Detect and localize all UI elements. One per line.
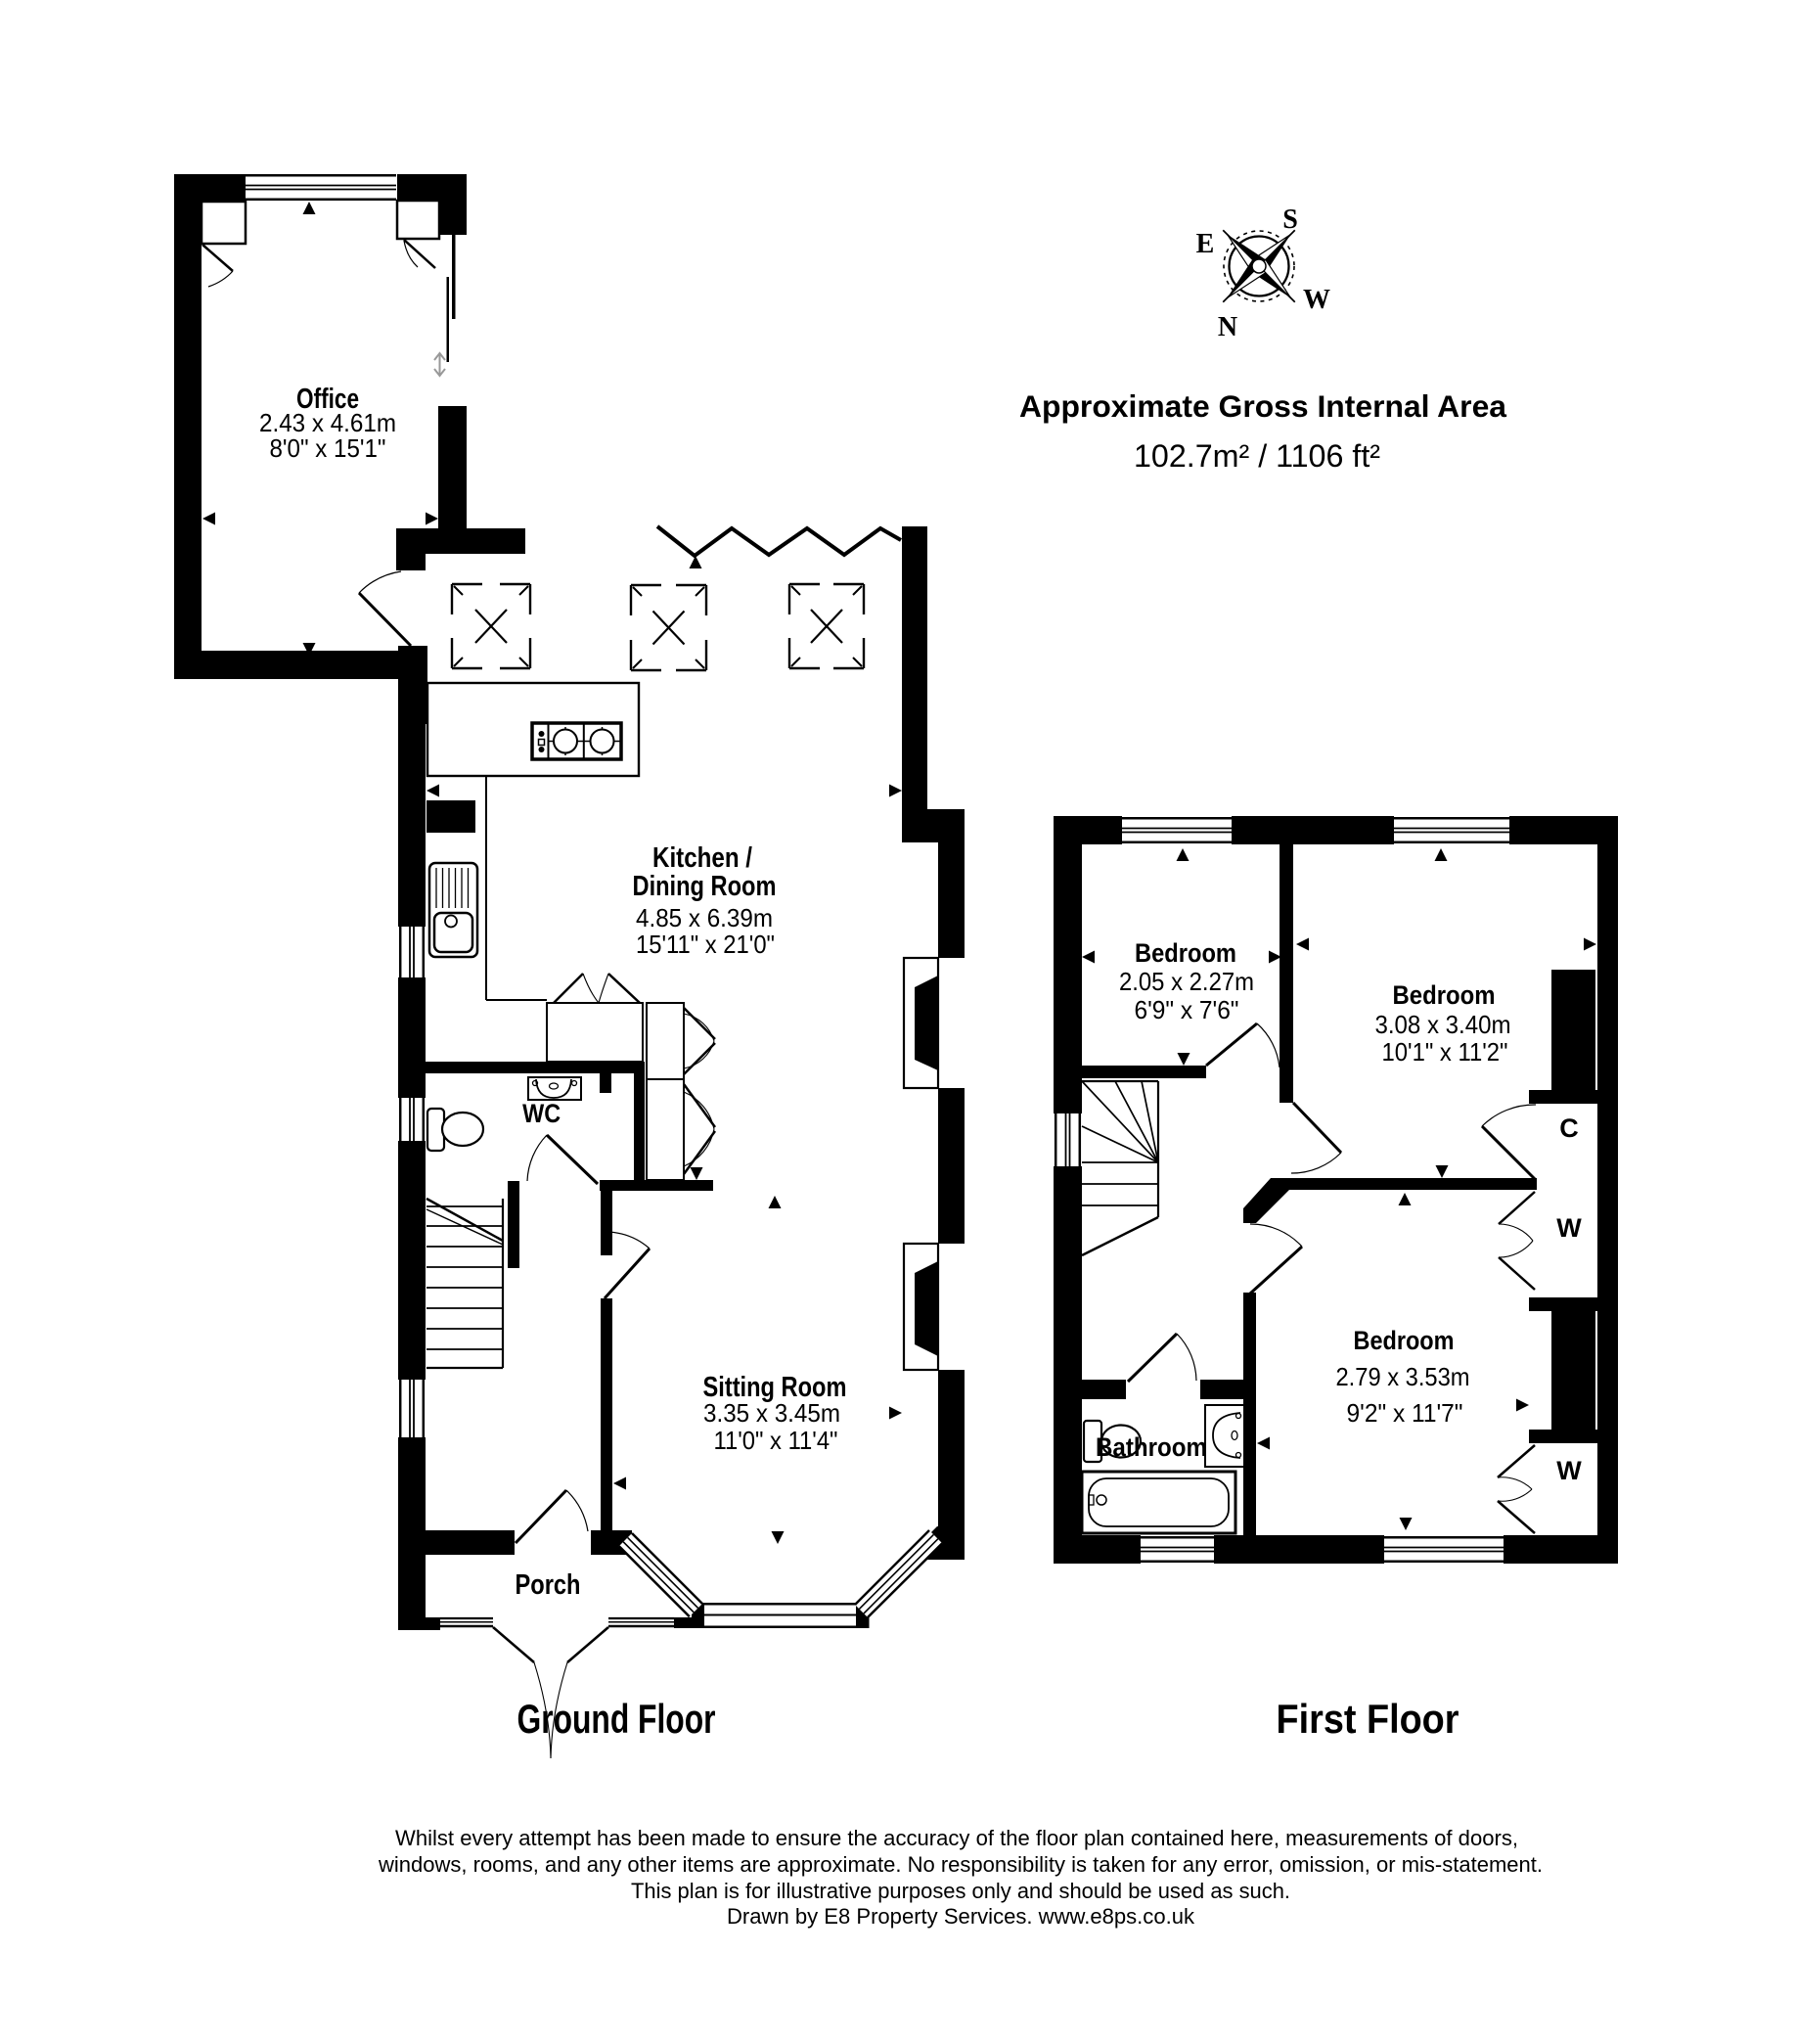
svg-text:Bathroom: Bathroom [1096,1432,1207,1462]
svg-text:Drawn by E8 Property Services.: Drawn by E8 Property Services. www.e8ps.… [727,1904,1195,1929]
svg-text:6'9" x 7'6": 6'9" x 7'6" [1135,995,1239,1024]
svg-text:2.79 x 3.53m: 2.79 x 3.53m [1336,1362,1470,1391]
svg-text:10'1" x 11'2": 10'1" x 11'2" [1382,1037,1508,1067]
svg-text:Kitchen /: Kitchen / [652,842,752,874]
svg-text:W: W [1303,285,1330,315]
svg-text:This plan is for illustrative: This plan is for illustrative purposes o… [631,1879,1290,1903]
svg-text:3.35 x 3.45m: 3.35 x 3.45m [703,1398,840,1428]
svg-text:E: E [1196,229,1215,259]
svg-text:Bedroom: Bedroom [1135,938,1236,968]
svg-text:C: C [1559,1113,1579,1143]
svg-text:S: S [1282,204,1298,235]
svg-text:11'0" x 11'4": 11'0" x 11'4" [714,1426,838,1455]
svg-text:3.08 x 3.40m: 3.08 x 3.40m [1375,1010,1511,1039]
svg-text:4.85 x 6.39m: 4.85 x 6.39m [636,903,773,932]
svg-text:Bedroom: Bedroom [1354,1326,1455,1355]
svg-text:Approximate Gross Internal Are: Approximate Gross Internal Area [1019,388,1506,424]
svg-text:WC: WC [522,1099,561,1128]
svg-text:N: N [1218,312,1237,342]
svg-text:Porch: Porch [516,1569,581,1601]
svg-text:W: W [1556,1213,1582,1243]
svg-text:windows, rooms, and any other: windows, rooms, and any other items are … [378,1852,1543,1877]
svg-text:Dining Room: Dining Room [633,871,777,902]
svg-text:102.7m² / 1106 ft²: 102.7m² / 1106 ft² [1134,438,1380,474]
svg-text:8'0" x 15'1": 8'0" x 15'1" [270,433,386,463]
svg-text:Whilst every attempt has been: Whilst every attempt has been made to en… [395,1826,1518,1850]
svg-text:W: W [1556,1456,1582,1485]
svg-text:Ground Floor: Ground Floor [517,1696,716,1742]
svg-text:First Floor: First Floor [1277,1696,1459,1742]
svg-text:Bedroom: Bedroom [1393,980,1496,1010]
svg-text:2.05 x 2.27m: 2.05 x 2.27m [1119,967,1254,996]
svg-text:9'2" x 11'7": 9'2" x 11'7" [1347,1398,1463,1428]
svg-text:15'11" x 21'0": 15'11" x 21'0" [636,930,775,959]
